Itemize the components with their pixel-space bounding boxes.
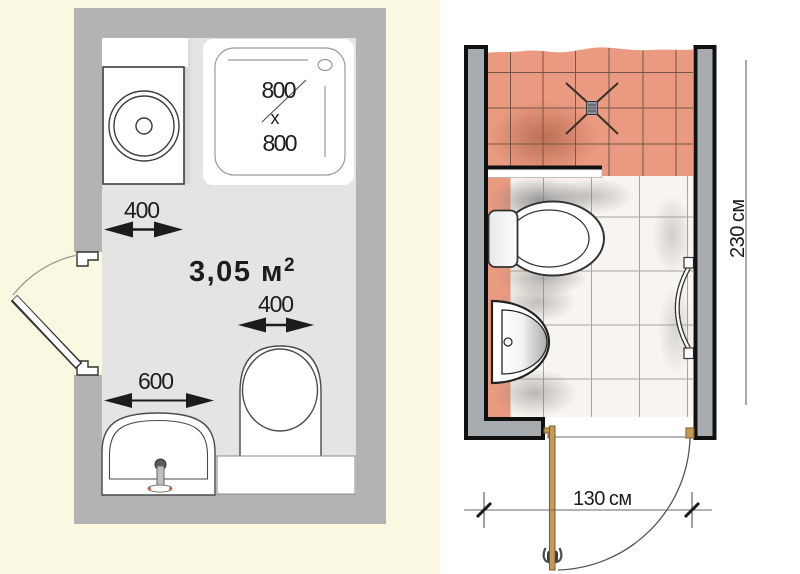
svg-text:230см: 230см xyxy=(727,199,749,258)
svg-text:800: 800 xyxy=(263,130,298,156)
svg-text:800: 800 xyxy=(262,77,297,103)
svg-text:130см: 130см xyxy=(573,488,632,510)
svg-text:3,05 м2: 3,05 м2 xyxy=(189,255,296,288)
svg-text:600: 600 xyxy=(138,368,174,394)
svg-text:400: 400 xyxy=(124,197,160,223)
svg-text:400: 400 xyxy=(258,291,294,317)
svg-text:x: x xyxy=(271,108,280,128)
